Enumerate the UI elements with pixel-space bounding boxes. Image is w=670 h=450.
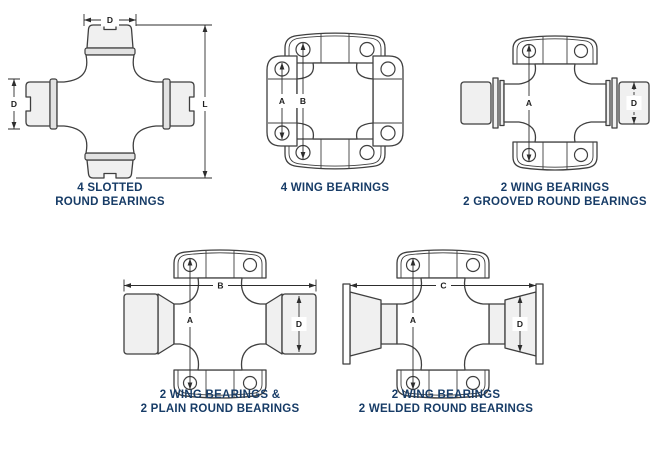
slotted-bearing-bottom [85, 153, 135, 178]
caption-four-wing: 4 WING BEARINGS [245, 181, 425, 195]
plain-round-bearing-right [266, 294, 316, 354]
caption-two-wing-two-welded: 2 WING BEARINGS 2 WELDED ROUND BEARINGS [336, 388, 556, 416]
four-wing-bearings-diagram: A B [225, 26, 445, 176]
caption-line: 2 WING BEARINGS [445, 181, 665, 195]
dim-label-a: A [410, 315, 416, 325]
wing-bearing-top [513, 36, 597, 64]
wing-bearing-top [285, 33, 385, 63]
caption-line: 2 WING BEARINGS [336, 388, 556, 402]
cross-body [504, 64, 606, 142]
dim-label-a: A [187, 315, 193, 325]
dimension-c: C [350, 279, 536, 292]
caption-four-slotted-round: 4 SLOTTED ROUND BEARINGS [20, 181, 200, 209]
slotted-bearing-top [85, 25, 135, 55]
wing-bearing-bottom [285, 139, 385, 169]
dim-label-a: A [526, 98, 532, 108]
caption-line: ROUND BEARINGS [20, 195, 200, 209]
caption-line: 2 WELDED ROUND BEARINGS [336, 402, 556, 416]
dim-label-l: L [202, 99, 207, 109]
slotted-bearing-left [26, 79, 57, 129]
welded-round-bearing-left [343, 284, 397, 364]
wing-bearing-right [373, 56, 403, 146]
dim-label-d: D [517, 319, 523, 329]
dim-label-c: C [440, 281, 446, 291]
dimension-b: B [124, 279, 316, 292]
cross-body [57, 55, 163, 153]
wing-bearing-top [397, 250, 489, 278]
two-wing-two-grooved-diagram: A D [445, 28, 665, 178]
caption-two-wing-two-plain: 2 WING BEARINGS & 2 PLAIN ROUND BEARINGS [110, 388, 330, 416]
plain-round-bearing-left [124, 294, 174, 354]
caption-line: 2 GROOVED ROUND BEARINGS [445, 195, 665, 209]
caption-line: 4 SLOTTED [20, 181, 200, 195]
dim-label-d: D [631, 98, 637, 108]
wing-bearing-bottom [513, 142, 597, 170]
caption-line: 2 WING BEARINGS & [110, 388, 330, 402]
slotted-bearing-right [163, 79, 194, 129]
bearing-types-diagram-sheet: D D L 4 SLOTTED ROUND BEARINGS [0, 0, 670, 450]
four-slotted-round-bearings-diagram: D D L [0, 8, 220, 180]
two-wing-two-welded-diagram: C A D [331, 246, 561, 406]
dim-label-d-top: D [107, 15, 113, 25]
two-wing-two-plain-diagram: B A D [110, 246, 330, 406]
caption-line: 4 WING BEARINGS [245, 181, 425, 195]
dim-label-a: A [279, 96, 285, 106]
wing-bearing-top [174, 250, 266, 278]
dim-label-b: B [217, 281, 223, 291]
dimension-d-left: D [7, 79, 22, 129]
grooved-round-bearing-left [461, 78, 504, 128]
caption-two-wing-two-grooved: 2 WING BEARINGS 2 GROOVED ROUND BEARINGS [445, 181, 665, 209]
dim-label-d: D [296, 319, 302, 329]
caption-line: 2 PLAIN ROUND BEARINGS [110, 402, 330, 416]
dim-label-d-left: D [11, 99, 17, 109]
dim-label-b: B [300, 96, 306, 106]
